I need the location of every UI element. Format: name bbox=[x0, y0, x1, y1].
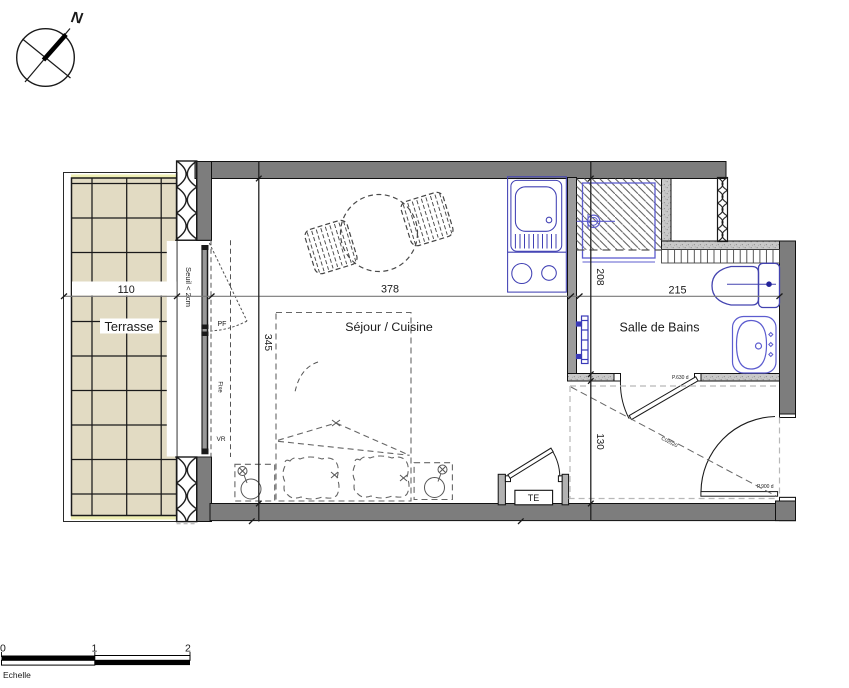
svg-text:0: 0 bbox=[0, 643, 6, 655]
svg-text:Séjour / Cuisine: Séjour / Cuisine bbox=[345, 320, 433, 334]
svg-text:VR: VR bbox=[217, 436, 226, 443]
svg-text:P.630 d: P.630 d bbox=[672, 375, 689, 381]
svg-text:Terrasse: Terrasse bbox=[104, 319, 153, 334]
svg-text:130: 130 bbox=[594, 433, 605, 450]
svg-text:215: 215 bbox=[668, 285, 686, 297]
svg-text:345: 345 bbox=[262, 334, 273, 351]
svg-text:N: N bbox=[70, 9, 85, 28]
svg-text:C02020: C02020 bbox=[660, 436, 678, 450]
svg-text:Salle de Bains: Salle de Bains bbox=[620, 320, 700, 334]
svg-text:Fixe: Fixe bbox=[217, 381, 223, 393]
svg-text:PF: PF bbox=[218, 321, 227, 328]
svg-text:378: 378 bbox=[381, 284, 399, 296]
svg-text:208: 208 bbox=[594, 268, 605, 285]
svg-text:Seuil < 2cm: Seuil < 2cm bbox=[184, 267, 193, 307]
svg-text:TE: TE bbox=[528, 493, 540, 503]
svg-text:Echelle: Echelle bbox=[3, 670, 31, 680]
svg-text:110: 110 bbox=[118, 284, 135, 296]
